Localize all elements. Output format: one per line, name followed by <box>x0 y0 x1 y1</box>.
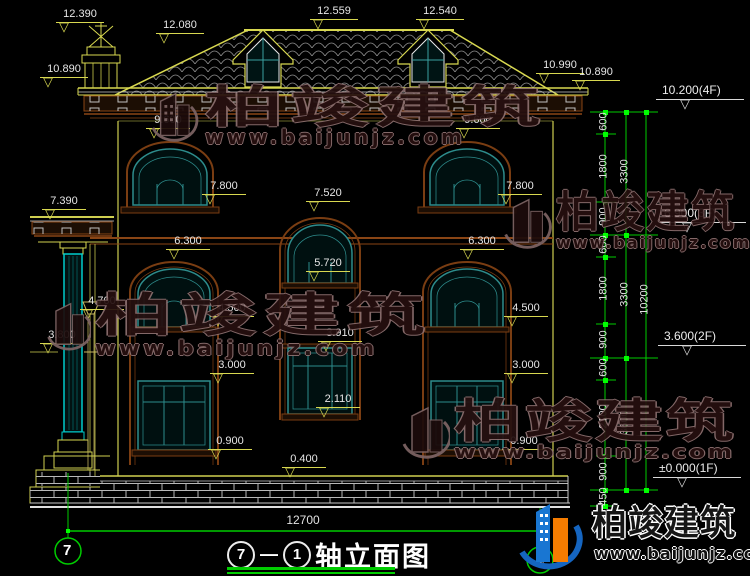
elevation-mark: 0.400 <box>282 453 326 468</box>
elevation-mark: 7.800 <box>202 180 246 195</box>
elevation-mark: 12.080 <box>156 19 204 34</box>
elevation-mark: 3.800 <box>40 329 84 344</box>
elevation-mark: 3.000 <box>504 359 548 374</box>
stair-window <box>280 218 360 420</box>
elevation-drawing-canvas: 12.390 12.080 12.559 12.540 10.890 10.99… <box>0 0 750 576</box>
title-axis-from: 7 <box>227 541 255 569</box>
elevation-mark: 2.110 <box>316 393 360 408</box>
window-bay-left <box>130 262 218 465</box>
elevation-mark: 7.390 <box>42 195 86 210</box>
dim-total: 10200 <box>640 276 651 324</box>
level-marker-4f: 10.200(4F) <box>656 83 744 100</box>
level-marker-3f: 6.900(3F) <box>658 206 746 223</box>
elevation-mark: 3.910 <box>318 327 362 342</box>
elevation-mark: 7.520 <box>306 187 350 202</box>
level-marker-2f: 3.600(2F) <box>658 329 746 346</box>
baijun-logo-icon <box>510 498 590 574</box>
dim-segment: 1800 <box>599 265 610 313</box>
dim-segment: 3300 <box>620 148 631 196</box>
title-underline <box>227 567 395 570</box>
elevation-mark: 5.720 <box>306 257 350 272</box>
cad-linework <box>0 0 750 576</box>
dim-segment: 3600 <box>620 399 631 447</box>
elevation-mark: 9.600 <box>456 114 500 129</box>
elevation-mark: 4.700 <box>80 295 124 310</box>
elevation-mark: 12.390 <box>56 8 104 23</box>
elevation-mark: 10.890 <box>572 66 620 81</box>
dim-segment: 600 <box>599 98 610 146</box>
elevation-mark: 6.300 <box>166 235 210 250</box>
title-dash: — <box>260 544 278 565</box>
dim-segment: 3300 <box>620 271 631 319</box>
elevation-mark: 4.500 <box>210 302 254 317</box>
dim-segment: 600 <box>599 344 610 392</box>
elevation-mark: 6.300 <box>460 235 504 250</box>
elevation-mark: 0.900 <box>208 435 252 450</box>
porch-column <box>54 242 92 468</box>
elevation-mark: 12.559 <box>310 5 358 20</box>
elevation-mark: 3.000 <box>210 359 254 374</box>
baijun-logo: 柏竣建筑 www.baijunjz.com <box>508 496 750 576</box>
roof <box>115 30 558 95</box>
logo-brand: 柏竣建筑 <box>592 506 736 541</box>
dim-segment: 2100 <box>599 393 610 441</box>
elevation-mark: 12.540 <box>416 5 464 20</box>
dim-segment: 600 <box>599 221 610 269</box>
dim-segment: 1800 <box>599 143 610 191</box>
elevation-mark: 7.800 <box>498 180 542 195</box>
level-marker-1f: ±0.000(1F) <box>653 461 741 478</box>
elevation-mark: 10.890 <box>40 63 88 78</box>
elevation-mark: 0.900 <box>502 435 546 450</box>
axis-bubble-7-label: 7 <box>63 542 71 559</box>
elevation-mark: 9.600 <box>146 114 190 129</box>
elevation-mark: 4.500 <box>504 302 548 317</box>
title-axis-to: 1 <box>283 541 311 569</box>
window-bay-right <box>423 262 511 465</box>
title-underline-2 <box>227 572 395 574</box>
logo-url: www.baijunjz.com <box>594 544 750 563</box>
plinth <box>96 476 570 507</box>
overall-width-dim: 12700 <box>268 514 338 527</box>
